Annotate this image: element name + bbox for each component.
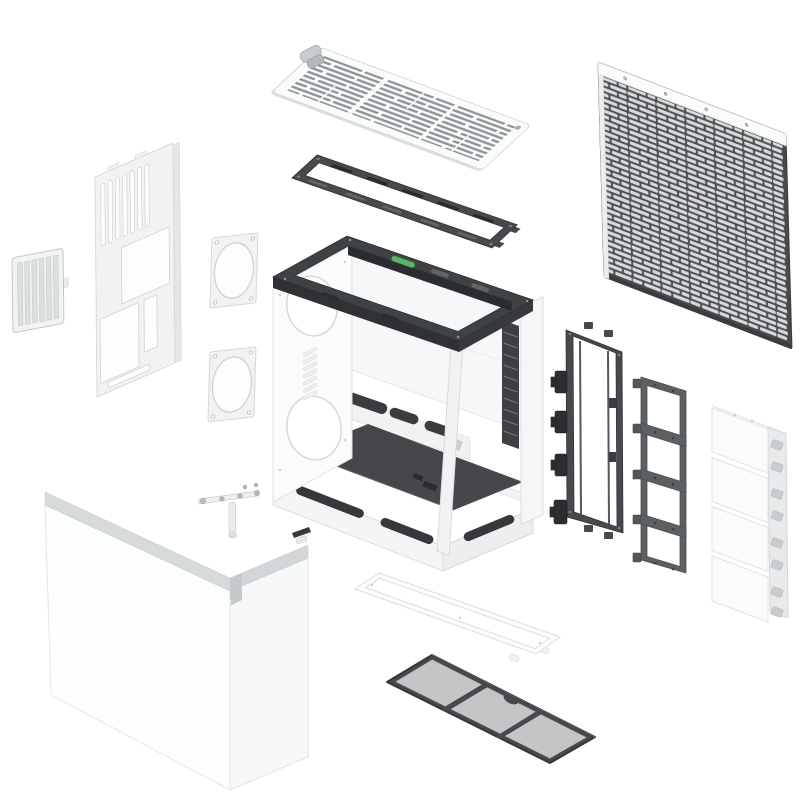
modular-panel-stack bbox=[712, 406, 788, 622]
filter-tab bbox=[63, 277, 68, 288]
side-bracket-frame bbox=[566, 330, 623, 533]
top-fan-bracket bbox=[292, 155, 523, 250]
rail-rung bbox=[641, 423, 686, 447]
bracket-cross-tab bbox=[609, 452, 616, 462]
bracket-tab-top bbox=[604, 330, 613, 337]
exploded-view-stage bbox=[0, 0, 800, 800]
bottom-filter-frame bbox=[355, 573, 560, 662]
bracket-tab-bottom bbox=[604, 532, 613, 539]
bottom-dust-filter bbox=[387, 655, 595, 763]
bracket-inner-rail bbox=[608, 351, 609, 524]
corner-clip bbox=[292, 527, 311, 544]
corner-clip-body bbox=[292, 527, 311, 538]
side-fan-bracket bbox=[550, 322, 623, 539]
front-right-pillar bbox=[521, 297, 543, 524]
main-chassis bbox=[273, 236, 543, 571]
rail-rung bbox=[641, 469, 686, 493]
bracket-clips bbox=[550, 371, 567, 524]
bracket-cross-tab bbox=[609, 398, 616, 408]
side-vent-filter bbox=[12, 247, 69, 333]
support-leg bbox=[229, 502, 236, 534]
cable-cover-strip bbox=[502, 320, 519, 449]
mesh-perforation bbox=[603, 77, 788, 342]
bracket-inner-rail bbox=[580, 341, 581, 514]
support-foot bbox=[229, 532, 237, 538]
rail-side-tabs bbox=[633, 379, 641, 562]
wraparound-panels bbox=[45, 492, 308, 790]
frame-screws bbox=[371, 584, 541, 644]
rail-rung bbox=[641, 514, 686, 538]
bracket-tab-top bbox=[584, 322, 593, 329]
base-right-rail bbox=[443, 509, 533, 571]
support-bracket bbox=[199, 483, 260, 538]
fan-adapter-plate-upper bbox=[210, 233, 258, 308]
bracket-tab-bottom bbox=[584, 525, 593, 532]
support-bar bbox=[199, 491, 258, 504]
front-mesh-panel bbox=[598, 62, 792, 349]
filter-frame-ring bbox=[355, 573, 560, 654]
dust-filter-mesh bbox=[396, 660, 586, 758]
rear-panel bbox=[95, 136, 181, 397]
frame-tab bbox=[508, 654, 519, 663]
exploded-view-canvas bbox=[0, 0, 800, 800]
rear-panel-cutout-narrow bbox=[144, 295, 157, 353]
bracket-screws bbox=[296, 157, 513, 245]
fan-mounting-rail bbox=[633, 377, 686, 573]
side-bracket-screws bbox=[569, 333, 621, 530]
fan-adapter-plate-lower bbox=[208, 347, 256, 422]
